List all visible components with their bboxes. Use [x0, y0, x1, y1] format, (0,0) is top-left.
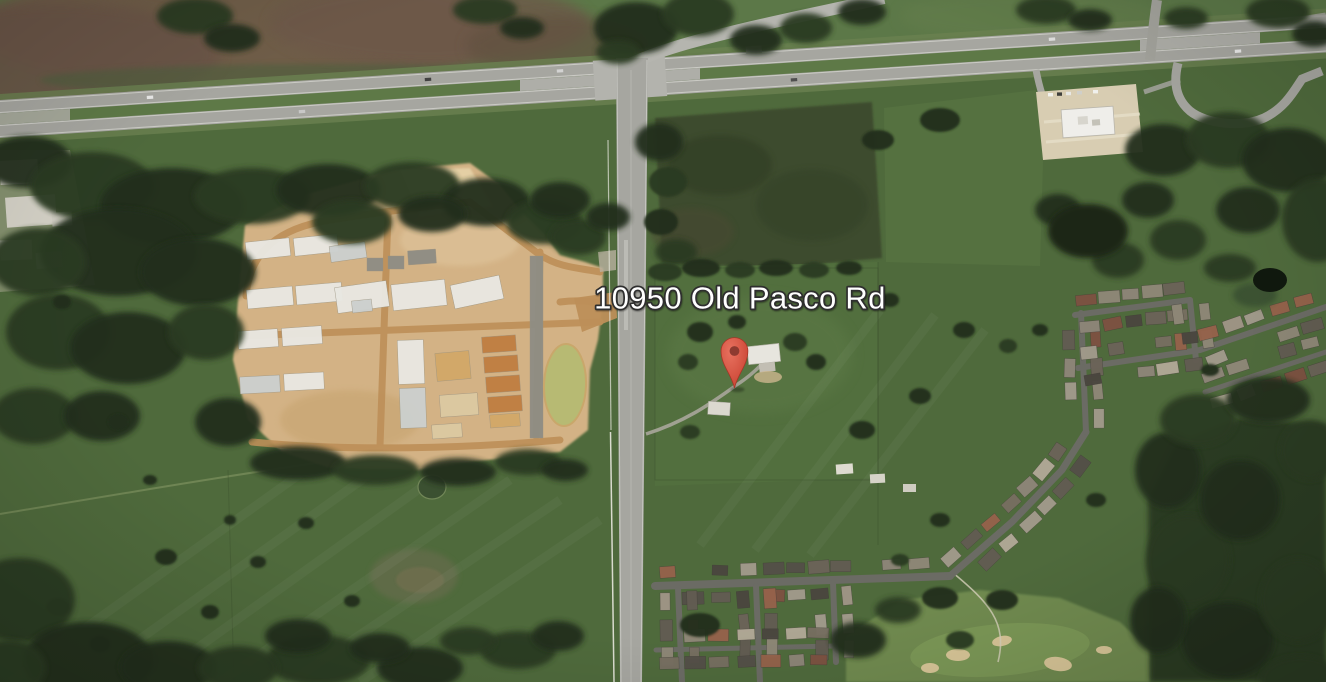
- construction-building: [483, 355, 518, 373]
- construction-building: [388, 256, 404, 269]
- vehicle: [1235, 49, 1242, 53]
- construction-building: [240, 375, 281, 394]
- street: [756, 586, 760, 682]
- house: [1145, 311, 1166, 325]
- house: [786, 627, 807, 640]
- house: [659, 566, 675, 579]
- tree: [862, 130, 894, 150]
- gravel-pad: [598, 250, 616, 272]
- tree: [250, 556, 266, 568]
- construction-building: [485, 375, 520, 393]
- tree: [350, 633, 410, 663]
- house: [1090, 330, 1101, 347]
- construction-building: [351, 299, 372, 313]
- house: [711, 592, 730, 603]
- tree: [195, 398, 261, 446]
- house: [1163, 281, 1186, 295]
- tree: [635, 123, 683, 161]
- house: [1182, 331, 1199, 344]
- house: [807, 627, 829, 638]
- tree: [500, 17, 544, 39]
- tree: [64, 391, 140, 441]
- house: [841, 585, 853, 605]
- tree: [53, 295, 71, 309]
- construction-building: [397, 340, 425, 385]
- tree: [298, 517, 314, 529]
- house: [659, 657, 679, 669]
- house: [762, 629, 778, 639]
- tree: [1150, 220, 1206, 260]
- tree: [542, 459, 588, 481]
- tree: [440, 627, 496, 655]
- vehicle: [425, 78, 432, 82]
- tree: [682, 259, 720, 277]
- dark-retention-area: [1048, 204, 1128, 258]
- house: [712, 565, 728, 576]
- construction-building: [391, 279, 447, 311]
- tree: [204, 24, 260, 52]
- graded-dirt: [280, 390, 420, 450]
- pin-inner-dot: [730, 346, 740, 356]
- construction-building: [432, 423, 463, 439]
- tree: [155, 549, 177, 565]
- vehicle: [1049, 37, 1056, 41]
- tree: [930, 513, 950, 527]
- tree: [530, 182, 590, 218]
- dirt-patch: [754, 371, 782, 383]
- sand-bunker: [946, 649, 970, 661]
- tree: [1200, 460, 1280, 540]
- tree: [398, 196, 466, 232]
- farm-shed: [903, 484, 916, 492]
- tree: [532, 621, 584, 651]
- forest-pond: [1253, 268, 1287, 292]
- tree: [1160, 394, 1236, 446]
- tree: [909, 388, 931, 404]
- tree: [1204, 254, 1256, 282]
- satellite-map-canvas[interactable]: 10950 Old Pasco Rd: [0, 0, 1326, 682]
- tree: [728, 315, 746, 329]
- house: [786, 563, 804, 573]
- farm-shed: [870, 474, 885, 484]
- house: [830, 561, 851, 572]
- house: [1125, 314, 1142, 327]
- tree: [344, 595, 360, 607]
- tree: [596, 40, 640, 64]
- house: [789, 654, 805, 667]
- construction-building: [399, 388, 426, 429]
- house: [1141, 284, 1163, 299]
- house: [808, 560, 830, 575]
- tree: [333, 455, 419, 485]
- tree: [201, 605, 219, 619]
- tree: [680, 613, 720, 637]
- construction-building: [530, 256, 543, 438]
- house: [1098, 290, 1121, 304]
- tree: [312, 200, 392, 244]
- tree: [838, 0, 886, 25]
- tree: [644, 209, 678, 235]
- house: [787, 589, 805, 600]
- house: [1094, 409, 1104, 428]
- tree: [953, 322, 975, 338]
- tree: [725, 262, 755, 278]
- construction-building: [487, 395, 522, 413]
- construction-building: [367, 258, 383, 271]
- construction-building: [281, 326, 322, 347]
- construction-building: [439, 393, 478, 418]
- tree: [1216, 187, 1280, 233]
- commercial-parcel-field: [884, 90, 1043, 266]
- sand-bunker: [1096, 646, 1112, 654]
- farm-shed: [836, 463, 854, 474]
- tree: [806, 354, 826, 370]
- tree: [1130, 587, 1186, 653]
- house: [761, 655, 781, 668]
- tree: [1086, 493, 1106, 507]
- house: [660, 620, 673, 641]
- tree: [70, 312, 186, 384]
- tree: [922, 587, 958, 609]
- tree: [759, 260, 793, 276]
- tree: [140, 238, 256, 306]
- house: [1122, 288, 1139, 300]
- tree: [648, 263, 682, 281]
- tree: [1182, 602, 1274, 678]
- house: [1065, 382, 1077, 400]
- property-shed: [708, 401, 731, 416]
- tree: [687, 322, 713, 342]
- tree: [143, 475, 157, 485]
- vehicle: [557, 69, 564, 73]
- house: [737, 629, 755, 641]
- tree: [891, 554, 909, 566]
- tree: [224, 515, 236, 525]
- tree: [946, 631, 974, 649]
- house: [1080, 345, 1098, 360]
- house: [810, 655, 827, 665]
- house: [738, 655, 756, 667]
- construction-building: [408, 249, 437, 265]
- house: [687, 591, 698, 610]
- house: [1199, 303, 1211, 321]
- commercial-building: [1061, 106, 1115, 138]
- tree: [649, 167, 687, 197]
- construction-building: [490, 413, 521, 428]
- tree: [920, 108, 960, 132]
- tree: [783, 333, 807, 351]
- house: [1155, 336, 1172, 348]
- house: [1064, 358, 1076, 377]
- tree: [250, 446, 346, 480]
- tree: [586, 203, 630, 231]
- tree: [678, 354, 698, 370]
- construction-building: [481, 335, 516, 353]
- construction-building: [435, 351, 471, 382]
- house: [685, 656, 706, 669]
- pin-shadow: [730, 387, 744, 392]
- house: [1079, 320, 1100, 333]
- house: [763, 588, 777, 609]
- house: [811, 588, 829, 600]
- tree: [1164, 7, 1208, 29]
- house: [660, 593, 670, 611]
- tree: [680, 425, 700, 439]
- house: [1107, 341, 1124, 355]
- vehicle: [299, 110, 306, 114]
- tree: [875, 597, 921, 623]
- construction-building: [246, 286, 293, 309]
- house: [1075, 294, 1097, 307]
- tree: [799, 262, 829, 278]
- house: [908, 557, 930, 570]
- tree: [108, 414, 128, 430]
- vehicle: [147, 96, 154, 100]
- house: [736, 591, 750, 609]
- satellite-map[interactable]: 10950 Old Pasco Rd: [0, 0, 1326, 682]
- house: [1062, 330, 1075, 350]
- vehicle: [791, 78, 798, 82]
- tree: [999, 339, 1017, 353]
- construction-building: [284, 372, 325, 391]
- tree: [849, 421, 875, 439]
- tree: [265, 619, 331, 653]
- tree: [1032, 324, 1048, 336]
- house: [765, 613, 778, 630]
- tree: [1068, 9, 1112, 31]
- tree: [1226, 377, 1310, 423]
- tree: [420, 458, 496, 486]
- house: [740, 563, 757, 576]
- tree: [1122, 182, 1174, 218]
- house: [1184, 357, 1203, 372]
- tree: [730, 25, 782, 55]
- sand-bunker: [921, 663, 939, 673]
- house: [740, 639, 751, 658]
- plowed-field-shade: [756, 169, 868, 241]
- house: [709, 656, 729, 668]
- house: [763, 562, 785, 575]
- tree: [830, 622, 886, 658]
- address-label[interactable]: 10950 Old Pasco Rd: [594, 280, 885, 315]
- tree: [986, 590, 1018, 610]
- tree: [168, 304, 244, 360]
- tree: [780, 13, 832, 43]
- tree: [836, 261, 862, 275]
- tree: [1201, 364, 1219, 376]
- house: [1137, 366, 1155, 378]
